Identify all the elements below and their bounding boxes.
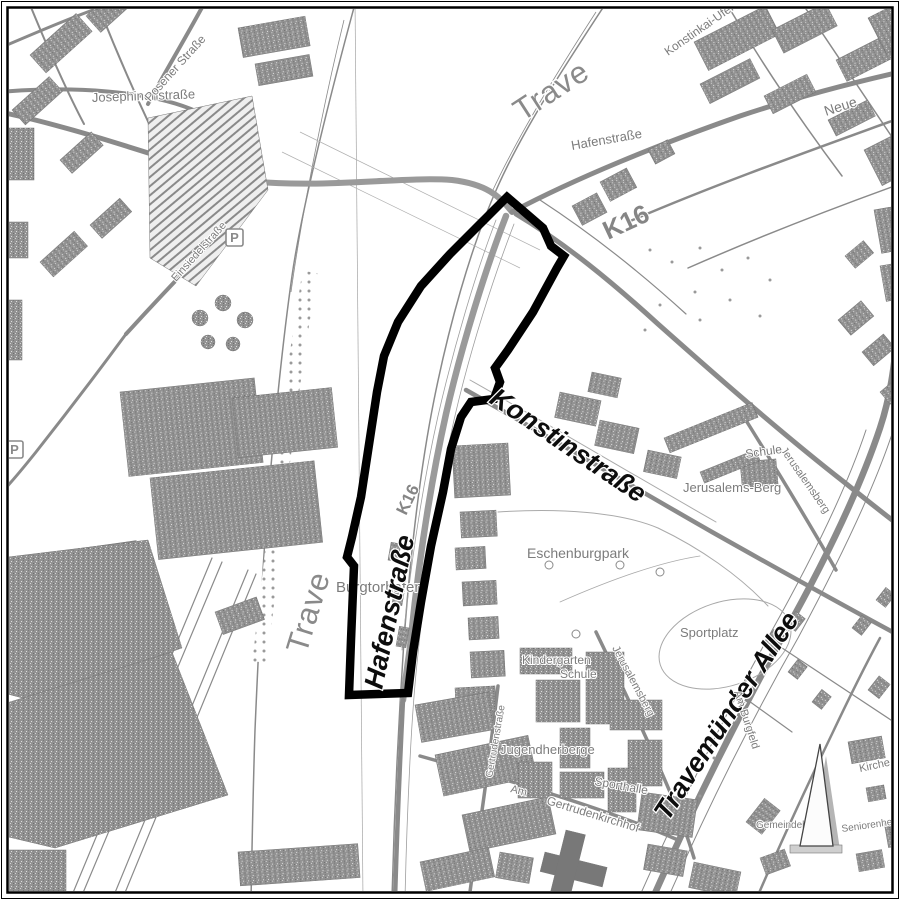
building [150, 461, 323, 560]
building [452, 443, 511, 498]
label-jerusalemsberg-street-upper: Jerusalemsberg [778, 445, 833, 516]
building [40, 231, 88, 277]
building [0, 850, 66, 895]
label-trave-top: Trave [507, 53, 596, 128]
building [420, 847, 495, 891]
label-kindergarten: Kindergarten [522, 653, 591, 667]
building [455, 546, 486, 570]
building [468, 616, 499, 640]
label-jerusalems-berg: Jerusalems-Berg [683, 480, 781, 495]
building [868, 676, 890, 699]
building [772, 3, 837, 53]
building [588, 372, 622, 398]
tank [201, 335, 215, 349]
building [862, 334, 895, 366]
label-sportplatz: Sportplatz [680, 625, 739, 640]
building [643, 450, 681, 479]
building [495, 852, 533, 884]
tree-symbols [545, 561, 664, 638]
building [874, 205, 900, 253]
building [415, 692, 495, 742]
tank [226, 337, 240, 351]
tank [192, 310, 208, 326]
label-trave-left: Trave [279, 567, 337, 657]
label-hafenstrasse-small: Hafenstraße [570, 126, 643, 153]
building [838, 301, 874, 336]
building [462, 797, 556, 852]
label-jugendherberge: Jugendherberge [500, 742, 595, 757]
label-schule-south: Schule [560, 667, 597, 681]
north-arrow-icon [790, 744, 842, 853]
building [232, 388, 338, 458]
label-eschenburgpark: Eschenburgpark [527, 545, 630, 561]
building [864, 135, 900, 186]
building [664, 402, 758, 452]
building [866, 785, 886, 802]
building [856, 849, 885, 871]
parking-icon: P [10, 442, 19, 457]
tank [215, 295, 231, 311]
building [760, 849, 791, 875]
building [90, 198, 132, 238]
building [255, 54, 313, 85]
label-am: Am [509, 783, 528, 799]
label-k16-upper: K16 [598, 198, 654, 245]
label-schule-north: Schule [744, 442, 783, 461]
tank [237, 312, 253, 328]
building [60, 132, 103, 173]
building [600, 168, 637, 202]
building [764, 74, 816, 114]
map-sheet: Burgtorhafen Trave Trave Konstinkai-Ufer… [0, 0, 900, 900]
building [812, 689, 831, 709]
building [536, 680, 580, 722]
building [610, 700, 662, 730]
city-map: Burgtorhafen Trave Trave Konstinkai-Ufer… [0, 0, 900, 900]
building [470, 650, 505, 678]
building [238, 844, 360, 886]
label-seniorenheim: Seniorenheim [841, 815, 900, 834]
building [12, 77, 63, 125]
building [880, 263, 900, 302]
building [0, 222, 28, 258]
building [86, 0, 139, 32]
building [462, 580, 497, 606]
parking-sign: P [226, 229, 243, 246]
building [0, 300, 22, 360]
building [460, 510, 497, 538]
building [845, 241, 874, 269]
building [238, 16, 310, 57]
building [0, 128, 34, 180]
building [555, 392, 601, 426]
parking-icon: P [230, 230, 239, 245]
railyard-hatch [148, 96, 268, 286]
